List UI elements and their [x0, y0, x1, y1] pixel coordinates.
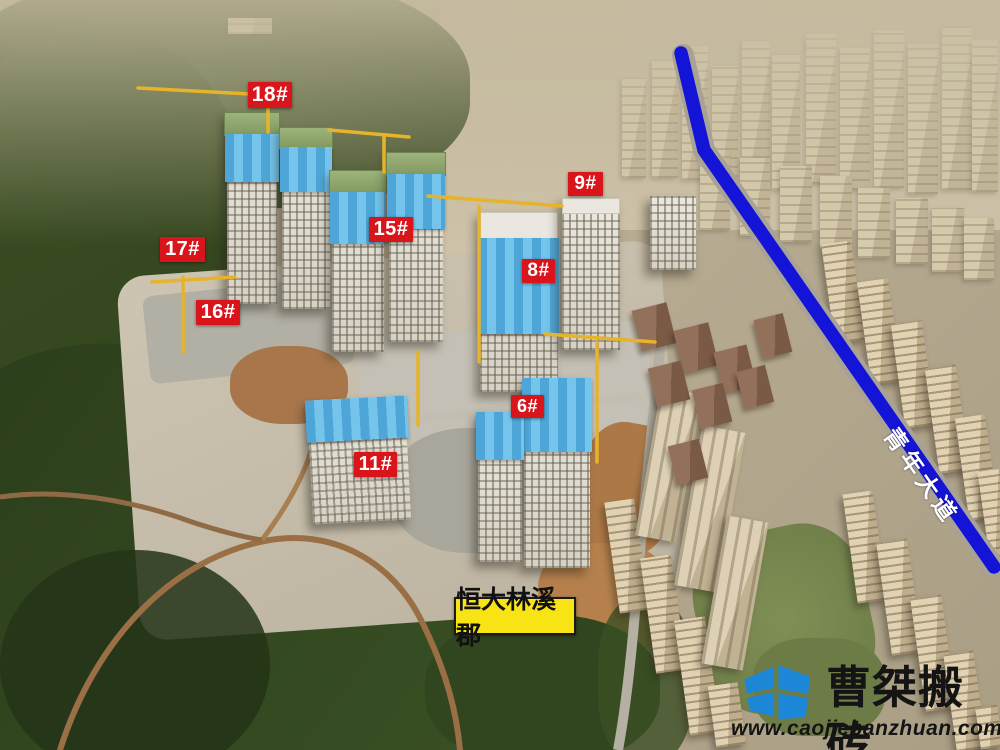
- building: [228, 18, 272, 34]
- watermark-url: www.caojiebanzhuan.com: [731, 715, 1000, 743]
- building: [700, 150, 730, 230]
- building-number-label: 8#: [522, 259, 555, 283]
- building: [896, 198, 928, 264]
- building: [840, 48, 870, 190]
- project-name-label: 恒大林溪郡: [454, 597, 576, 635]
- building: [972, 40, 998, 192]
- building: [740, 158, 770, 236]
- building: [858, 188, 890, 258]
- building-number-label: 11#: [354, 452, 397, 477]
- building: [622, 78, 646, 178]
- tower-15-a: [332, 170, 384, 352]
- building-number-label: 15#: [369, 217, 413, 242]
- building-number-label: 9#: [568, 172, 603, 196]
- tower-18-b: [282, 127, 330, 309]
- building-number-label: 18#: [248, 82, 292, 108]
- building: [874, 30, 904, 188]
- building: [652, 60, 678, 178]
- window-pane-logo-icon: [738, 658, 816, 722]
- building: [820, 176, 852, 248]
- tower-6-b: [478, 412, 522, 562]
- building-number-label: 16#: [196, 300, 240, 325]
- building: [806, 34, 836, 184]
- building: [942, 26, 972, 190]
- tower-15-b: [389, 152, 443, 342]
- tower-8: [480, 212, 558, 392]
- building: [780, 166, 812, 242]
- aerial-photo: 18#17#16#15#9#8#6#11# 青年大道 恒大林溪郡 曹桀搬砖 ww…: [0, 0, 1000, 750]
- building: [908, 44, 938, 194]
- building: [964, 218, 994, 280]
- tower-18-a: [227, 112, 277, 304]
- watermark-title: 曹桀搬砖: [826, 660, 1000, 716]
- office-building: [650, 196, 696, 270]
- tower-9: [562, 198, 620, 350]
- building-number-label: 17#: [160, 237, 205, 262]
- building: [932, 208, 964, 272]
- building-number-label: 6#: [511, 395, 544, 418]
